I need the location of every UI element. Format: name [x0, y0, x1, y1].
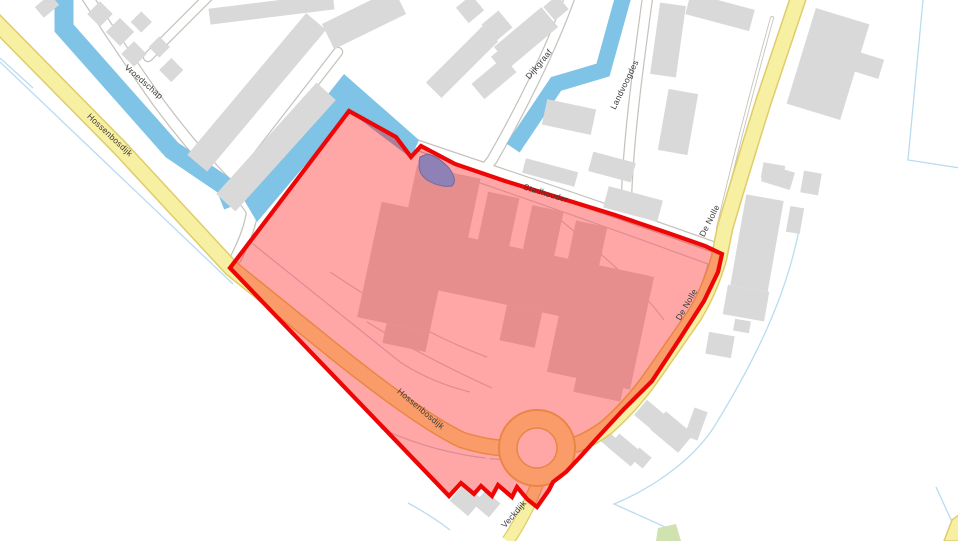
map-canvas[interactable]: Vroedschap Hossenbosdijk Dijkgraaf Landv…: [0, 0, 958, 541]
map-viewport[interactable]: Vroedschap Hossenbosdijk Dijkgraaf Landv…: [0, 0, 958, 541]
